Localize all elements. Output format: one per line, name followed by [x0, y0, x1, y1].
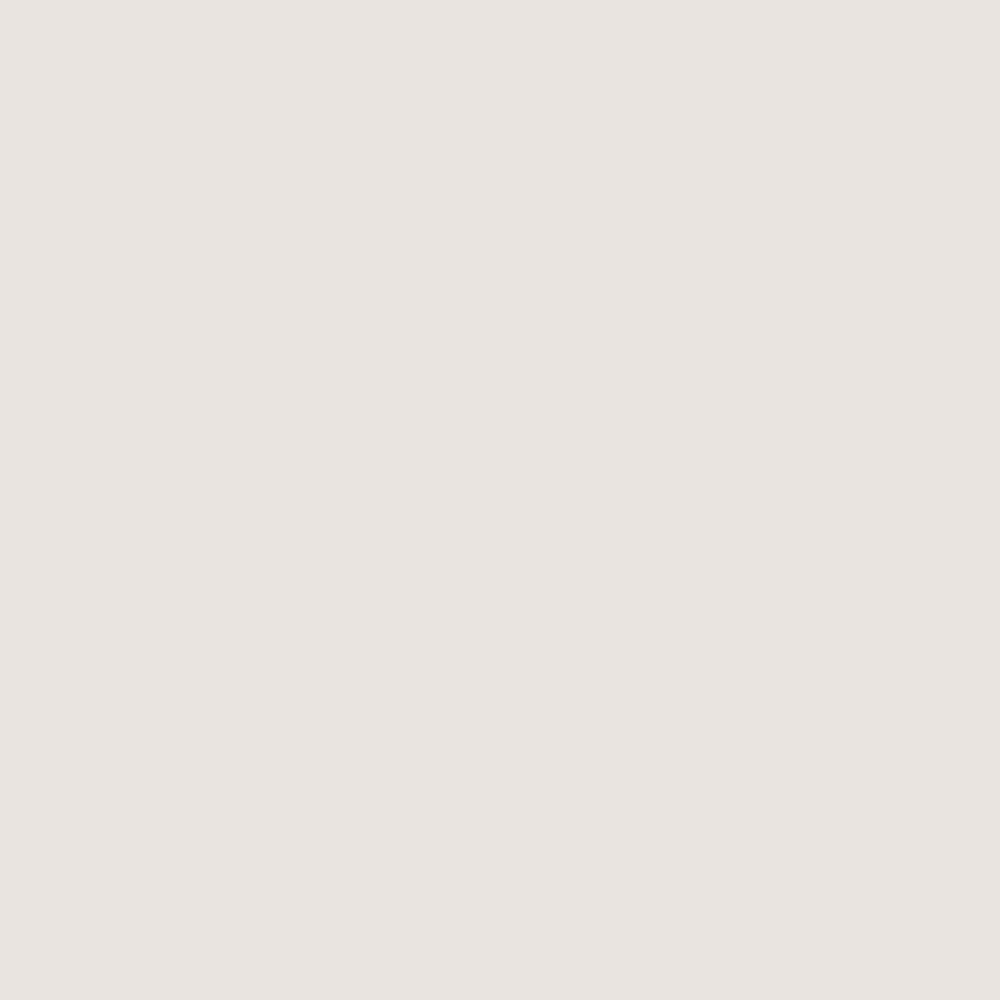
stock-photo-3d-city-map [0, 0, 1000, 1000]
city-map-3d-render [0, 0, 1000, 1000]
